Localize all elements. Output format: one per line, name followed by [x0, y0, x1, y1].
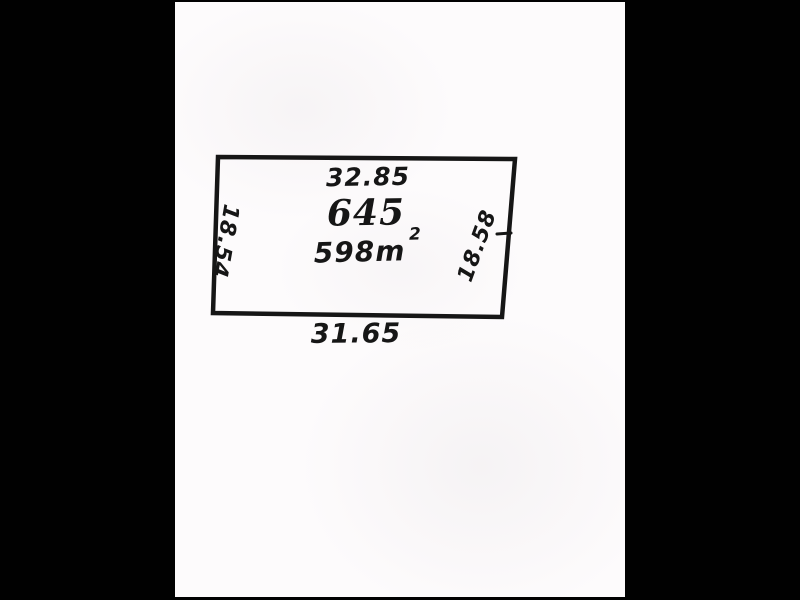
scanned-plan-paper: 32.85 645 598m2 31.65 18.54 18.58	[175, 2, 625, 597]
area-superscript: 2	[409, 224, 422, 244]
dimension-bottom: 31.65	[311, 320, 402, 348]
boundary-tick-mark	[497, 233, 511, 234]
lot-number: 645	[327, 194, 406, 231]
lot-boundary-drawing	[175, 2, 625, 597]
area-value: 598m	[313, 234, 405, 269]
scanned-image-canvas: 32.85 645 598m2 31.65 18.54 18.58	[0, 0, 800, 600]
dimension-top: 32.85	[326, 164, 411, 190]
lot-area: 598m2	[313, 236, 422, 267]
